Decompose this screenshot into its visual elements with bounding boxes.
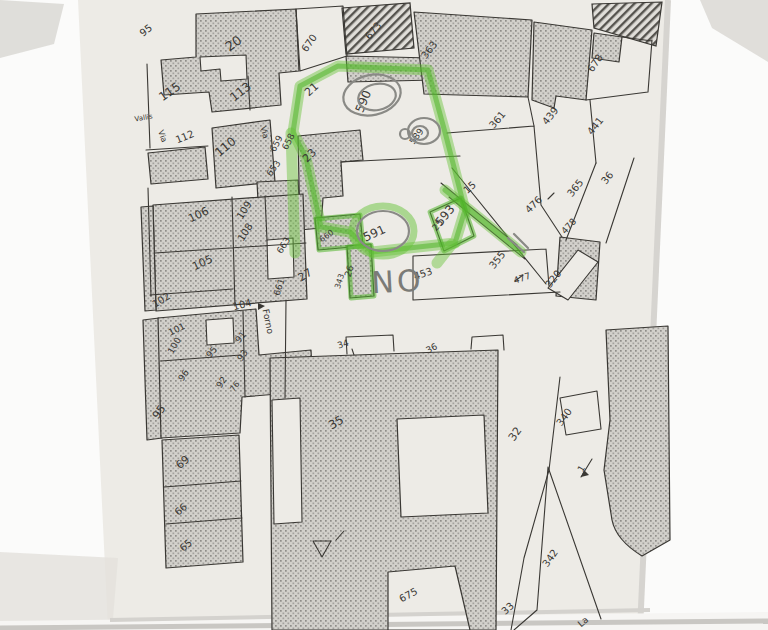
green-left-leg xyxy=(291,133,295,253)
building-439 xyxy=(532,22,592,108)
building-69-65 xyxy=(162,435,243,568)
handwritten-no: NO xyxy=(371,263,425,301)
building-11x xyxy=(148,147,208,184)
map-canvas: 95 20 670 673 363 678 115 113 21 590 589… xyxy=(0,0,768,630)
corner-shadow-bottomleft xyxy=(0,552,118,630)
building-southeast xyxy=(604,326,670,556)
cadastral-map-photo: 95 20 670 673 363 678 115 113 21 590 589… xyxy=(0,0,768,630)
street-notch xyxy=(272,398,302,524)
